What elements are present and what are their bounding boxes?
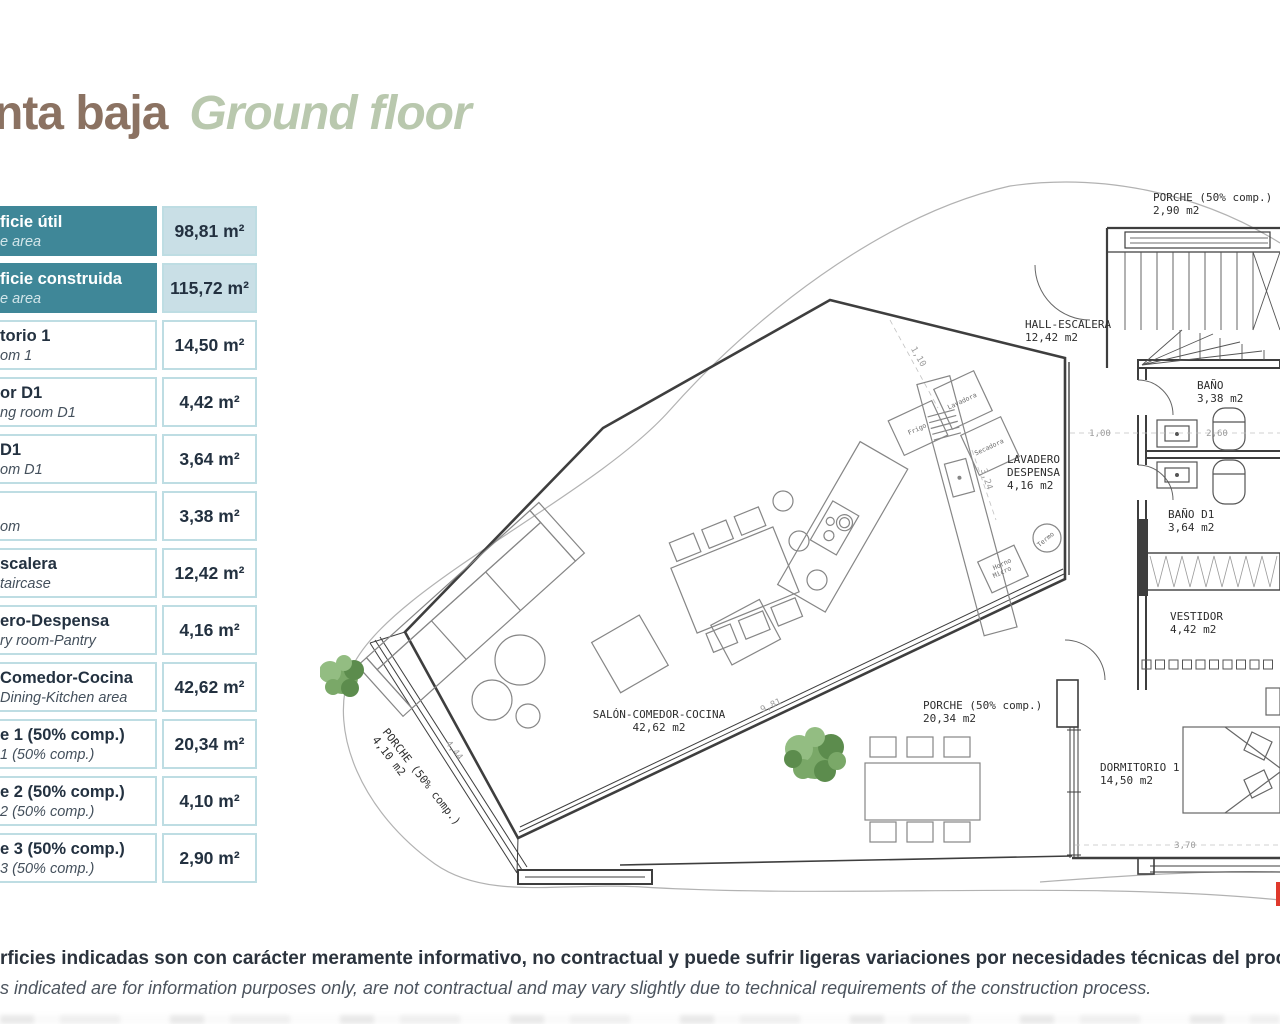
svg-text:2,90 m2: 2,90 m2 [1153, 204, 1199, 217]
room-label-cell: ero-Despensary room-Pantry [0, 605, 157, 655]
staircase [1035, 228, 1280, 368]
table-row: om3,38 m² [0, 491, 260, 541]
room-label-cell: or D1ng room D1 [0, 377, 157, 427]
svg-text:12,42 m2: 12,42 m2 [1025, 331, 1078, 344]
room-name-en: ng room D1 [0, 404, 151, 423]
area-value: 115,72 m² [162, 263, 257, 313]
room-name-en: 1 (50% comp.) [0, 746, 151, 765]
dimension-label: 2,60 [1206, 429, 1228, 439]
coffee-table [495, 635, 545, 685]
svg-text:1,00: 1,00 [1089, 429, 1111, 439]
svg-text:HALL-ESCALERA: HALL-ESCALERA [1025, 318, 1111, 331]
table-row: e 2 (50% comp.)2 (50% comp.)4,10 m² [0, 776, 260, 826]
room-name-en: om [0, 518, 151, 537]
area-value: 4,10 m² [162, 776, 257, 826]
area-value: 3,64 m² [162, 434, 257, 484]
right-wing [1057, 368, 1280, 874]
room-label-cell: D1om D1 [0, 434, 157, 484]
room-name-en: om D1 [0, 461, 151, 480]
tree [784, 727, 846, 782]
room-name-en: Dining-Kitchen area [0, 689, 151, 708]
dimension-label: 3,70 [1174, 841, 1196, 851]
svg-text:Secadora: Secadora [973, 437, 1005, 458]
room-name-en: 3 (50% comp.) [0, 860, 151, 879]
svg-text:Frigo: Frigo [907, 421, 928, 437]
room-name-en: e area [0, 290, 151, 309]
svg-text:PORCHE (50% comp.): PORCHE (50% comp.) [923, 699, 1042, 712]
room-label: BAÑO3,38 m2 [1197, 379, 1243, 405]
dining-table [662, 505, 808, 656]
dimension-label: 1,10 [908, 345, 928, 369]
room-label-cell: om [0, 491, 157, 541]
area-value: 42,62 m² [162, 662, 257, 712]
svg-text:Lavadora: Lavadora [946, 391, 978, 412]
appliance-label: Termo [1036, 530, 1056, 549]
disclaimer: rficies indicadas son con carácter meram… [0, 944, 1280, 1002]
room-label: VESTIDOR4,42 m2 [1170, 610, 1223, 636]
svg-text:14,50 m2: 14,50 m2 [1100, 774, 1153, 787]
room-label: PORCHE (50% comp.)20,34 m2 [923, 699, 1042, 725]
bar-stool [773, 491, 793, 511]
table-row: Comedor-CocinaDining-Kitchen area42,62 m… [0, 662, 260, 712]
page-title-english: Ground floor [189, 87, 470, 140]
table-row: or D1ng room D14,42 m² [0, 377, 260, 427]
floor-plan: PORCHE (50% comp.)2,90 m2HALL-ESCALERA12… [320, 170, 1280, 1024]
room-name-es: Comedor-Cocina [0, 668, 151, 689]
table-row: ero-Despensary room-Pantry4,16 m² [0, 605, 260, 655]
room-name-es: ficie útil [0, 212, 151, 233]
svg-text:4,16 m2: 4,16 m2 [1007, 479, 1053, 492]
dimension-label: 1,00 [1089, 429, 1111, 439]
kitchen-counter [917, 376, 1017, 636]
room-label-cell: Comedor-CocinaDining-Kitchen area [0, 662, 157, 712]
room-name-en: e area [0, 233, 151, 252]
svg-text:1,10: 1,10 [908, 345, 928, 369]
area-value: 12,42 m² [162, 548, 257, 598]
area-value: 14,50 m² [162, 320, 257, 370]
tree [320, 655, 364, 697]
room-label-cell: scalerataircase [0, 548, 157, 598]
table-row: e 1 (50% comp.)1 (50% comp.)20,34 m² [0, 719, 260, 769]
table-row: ficie útile area98,81 m² [0, 206, 260, 256]
room-name-es: D1 [0, 440, 151, 461]
room-label-cell: ficie construidae area [0, 263, 157, 313]
appliance-label: Frigo [907, 421, 928, 437]
room-label: BAÑO D13,64 m2 [1168, 508, 1214, 534]
room-name-es: or D1 [0, 383, 151, 404]
room-name-es: scalera [0, 554, 151, 575]
table-row: e 3 (50% comp.)3 (50% comp.)2,90 m² [0, 833, 260, 883]
table-row: torio 1om 114,50 m² [0, 320, 260, 370]
room-name-en: om 1 [0, 347, 151, 366]
svg-text:VESTIDOR: VESTIDOR [1170, 610, 1223, 623]
svg-text:DORMITORIO 1: DORMITORIO 1 [1100, 761, 1179, 774]
disclaimer-spanish: rficies indicadas son con carácter meram… [0, 944, 1280, 974]
svg-text:PORCHE (50% comp.): PORCHE (50% comp.) [1153, 191, 1272, 204]
area-table: ficie útile area98,81 m²ficie construida… [0, 206, 260, 890]
area-value: 20,34 m² [162, 719, 257, 769]
room-name-en: taircase [0, 575, 151, 594]
area-value: 4,16 m² [162, 605, 257, 655]
room-name-en: ry room-Pantry [0, 632, 151, 651]
room-name-es: e 2 (50% comp.) [0, 782, 151, 803]
area-value: 4,42 m² [162, 377, 257, 427]
brochure-page: { "title": { "es_fragment": "nta baja", … [0, 0, 1280, 1024]
room-label: LAVADERODESPENSA4,16 m2 [1007, 453, 1060, 492]
room-label-cell: e 1 (50% comp.)1 (50% comp.) [0, 719, 157, 769]
room-name-en: 2 (50% comp.) [0, 803, 151, 822]
disclaimer-english: s indicated are for information purposes… [0, 974, 1280, 1002]
room-label-cell: e 2 (50% comp.)2 (50% comp.) [0, 776, 157, 826]
appliance-label: Secadora [973, 437, 1005, 458]
svg-text:2,60: 2,60 [1206, 429, 1228, 439]
sofa [358, 502, 585, 716]
table-row: scalerataircase12,42 m² [0, 548, 260, 598]
svg-text:Termo: Termo [1036, 530, 1056, 549]
appliance-label: Lavadora [946, 391, 978, 412]
room-label: SALÓN-COMEDOR-COCINA42,62 m2 [593, 708, 726, 734]
table-row: ficie construidae area115,72 m² [0, 263, 260, 313]
room-label: HALL-ESCALERA12,42 m2 [1025, 318, 1111, 344]
room-name-es: e 3 (50% comp.) [0, 839, 151, 860]
svg-text:3,64 m2: 3,64 m2 [1168, 521, 1214, 534]
room-label-cell: e 3 (50% comp.)3 (50% comp.) [0, 833, 157, 883]
area-value: 2,90 m² [162, 833, 257, 883]
armchair [711, 599, 781, 665]
page-title: nta bajaGround floor [0, 86, 471, 141]
area-value: 98,81 m² [162, 206, 257, 256]
svg-text:DESPENSA: DESPENSA [1007, 466, 1060, 479]
area-value: 3,38 m² [162, 491, 257, 541]
room-label-cell: ficie útile area [0, 206, 157, 256]
svg-text:BAÑO D1: BAÑO D1 [1168, 508, 1214, 521]
next-section-edge [0, 1015, 1280, 1024]
table-row: D1om D13,64 m² [0, 434, 260, 484]
svg-text:4,42 m2: 4,42 m2 [1170, 623, 1216, 636]
building-walls [370, 300, 1072, 884]
svg-text:3,38 m2: 3,38 m2 [1197, 392, 1243, 405]
svg-text:LAVADERO: LAVADERO [1007, 453, 1060, 466]
room-name-es: e 1 (50% comp.) [0, 725, 151, 746]
page-title-spanish: nta baja [0, 87, 167, 140]
armchair [592, 615, 669, 693]
svg-text:20,34 m2: 20,34 m2 [923, 712, 976, 725]
room-name-es [0, 497, 151, 518]
svg-text:SALÓN-COMEDOR-COCINA: SALÓN-COMEDOR-COCINA [593, 708, 726, 721]
svg-text:42,62 m2: 42,62 m2 [633, 721, 686, 734]
outdoor-table [865, 737, 980, 842]
room-name-es: torio 1 [0, 326, 151, 347]
svg-text:BAÑO: BAÑO [1197, 379, 1224, 392]
living-furniture [358, 371, 1061, 842]
red-edge-mark [1276, 882, 1280, 906]
svg-text:3,70: 3,70 [1174, 841, 1196, 851]
room-name-es: ficie construida [0, 269, 151, 290]
room-name-es: ero-Despensa [0, 611, 151, 632]
room-label: DORMITORIO 114,50 m2 [1100, 761, 1179, 787]
room-label-cell: torio 1om 1 [0, 320, 157, 370]
room-label: PORCHE (50% comp.)2,90 m2 [1153, 191, 1272, 217]
